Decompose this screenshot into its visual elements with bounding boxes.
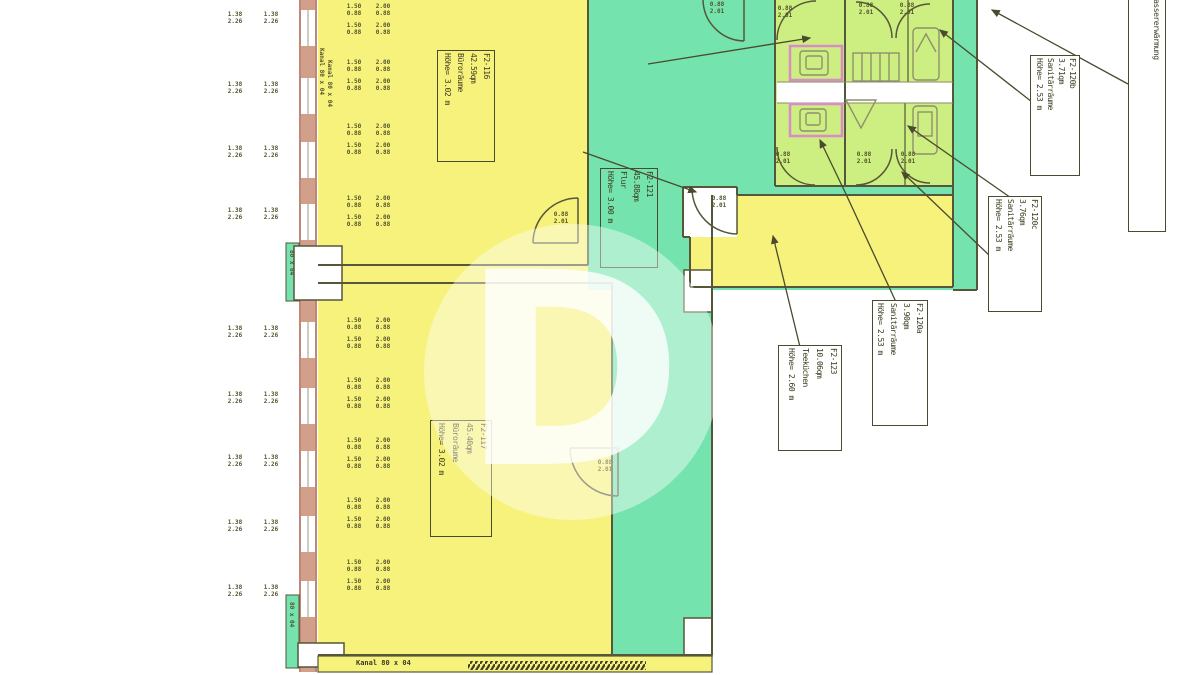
unit-tag: 1.500.88 [341, 517, 367, 530]
window-tag-bottom: 2.26 [258, 527, 284, 534]
unit-tag: 2.000.88 [370, 457, 396, 470]
window-tag: 1.382.26 [258, 455, 284, 468]
door-tag: 0.882.01 [770, 152, 796, 165]
room-label-F2-117: F2-117 45.40qm Büroräume Höhe= 3.02 m [430, 420, 492, 537]
window-tag: 1.382.26 [222, 392, 248, 405]
window-tag-bottom: 2.26 [222, 333, 248, 340]
label-line: 60 m [1134, 0, 1149, 229]
window-tag: 1.382.26 [222, 326, 248, 339]
door-tag-bottom: 2.01 [894, 10, 920, 17]
window-tag-bottom: 2.26 [258, 215, 284, 222]
window-tag-bottom: 2.26 [222, 527, 248, 534]
unit-tag: 1.500.88 [341, 143, 367, 156]
unit-tag-bottom: 0.88 [370, 67, 396, 74]
room-height: Höhe= 2.53 m [992, 199, 1004, 309]
unit-tag-bottom: 0.88 [370, 505, 396, 512]
unit-tag-bottom: 0.88 [370, 586, 396, 593]
window-tag: 1.382.26 [222, 585, 248, 598]
unit-tag: 1.500.88 [341, 337, 367, 350]
door-tag: 0.882.01 [851, 152, 877, 165]
room-label-F2-120b: F2-120b 3.71qm Sanitärräume Höhe= 2.53 m [1030, 55, 1080, 176]
unit-tag-bottom: 0.88 [341, 505, 367, 512]
facade-strip-note-2: 80 x 04 [288, 602, 295, 662]
door-tag-bottom: 2.01 [770, 159, 796, 166]
room-height: Höhe= 2.53 m [1034, 58, 1045, 173]
unit-tag: 2.000.88 [370, 378, 396, 391]
unit-tag: 1.500.88 [341, 498, 367, 511]
unit-tag-bottom: 0.88 [341, 86, 367, 93]
window-tag-bottom: 2.26 [258, 153, 284, 160]
unit-tag-bottom: 0.88 [370, 404, 396, 411]
unit-tag-bottom: 0.88 [341, 67, 367, 74]
wall-annotation-left-2: Kanal 80 x 04 [326, 60, 333, 150]
unit-tag-bottom: 0.88 [370, 344, 396, 351]
room-type: Flur [617, 171, 630, 265]
room-id: F2-120b [1067, 58, 1078, 173]
door-tag: 0.882.01 [894, 3, 920, 16]
room-label-F2-120a: F2-120a 3.90qm Sanitärräume Höhe= 2.53 m [872, 300, 928, 426]
window-tag: 1.382.26 [258, 12, 284, 25]
window-tag-bottom: 2.26 [222, 215, 248, 222]
unit-tag-bottom: 0.88 [341, 131, 367, 138]
window-tag-bottom: 2.26 [222, 153, 248, 160]
unit-tag-bottom: 0.88 [341, 325, 367, 332]
room-area: 3.90qm [900, 303, 913, 423]
unit-tag-bottom: 0.88 [370, 203, 396, 210]
unit-tag: 2.000.88 [370, 318, 396, 331]
room-label-F2-120c: F2-120c 3.76qm Sanitärräume Höhe= 2.53 m [988, 196, 1042, 312]
room-area: 45.40qm [462, 423, 476, 534]
unit-tag: 2.000.88 [370, 79, 396, 92]
wall-annotation-left-1: Kanal 80 x 04 [318, 48, 325, 148]
unit-tag-bottom: 0.88 [370, 464, 396, 471]
window-tag-bottom: 2.26 [222, 19, 248, 26]
door-tag-bottom: 2.01 [548, 219, 574, 226]
door-tag-bottom: 2.01 [895, 159, 921, 166]
unit-tag-bottom: 0.88 [370, 11, 396, 18]
room-label-F2-121: F2-121 45.88qm Flur Höhe= 3.00 m [600, 168, 658, 268]
door-tag: 0.882.01 [853, 3, 879, 16]
door-tag: 0.882.01 [772, 6, 798, 19]
unit-tag: 1.500.88 [341, 196, 367, 209]
room-id: F2-120a [913, 303, 926, 423]
window-tag-bottom: 2.26 [258, 19, 284, 26]
window-tag: 1.382.26 [222, 208, 248, 221]
unit-tag-bottom: 0.88 [341, 586, 367, 593]
unit-tag: 1.500.88 [341, 4, 367, 17]
unit-tag-bottom: 0.88 [370, 325, 396, 332]
door-tag-bottom: 2.01 [851, 159, 877, 166]
room-height: Höhe= 2.53 m [874, 303, 887, 423]
room-height: Höhe= 2.60 m [784, 348, 798, 448]
room-type: Sanitärräume [1004, 199, 1016, 309]
window-tag: 1.382.26 [258, 520, 284, 533]
room-type: Büroräume [454, 53, 467, 159]
window-tag: 1.382.26 [222, 455, 248, 468]
unit-tag: 1.500.88 [341, 60, 367, 73]
unit-tag: 1.500.88 [341, 378, 367, 391]
room-type: Sanitärräume [887, 303, 900, 423]
unit-tag-bottom: 0.88 [341, 203, 367, 210]
window-tag: 1.382.26 [222, 146, 248, 159]
unit-tag-bottom: 0.88 [370, 30, 396, 37]
unit-tag-bottom: 0.88 [341, 404, 367, 411]
window-tag-bottom: 2.26 [222, 462, 248, 469]
door-tag: 0.882.01 [895, 152, 921, 165]
door-tag: 0.882.01 [548, 212, 574, 225]
unit-tag: 2.000.88 [370, 337, 396, 350]
unit-tag-bottom: 0.88 [341, 567, 367, 574]
unit-tag-bottom: 0.88 [341, 524, 367, 531]
window-tag-bottom: 2.26 [222, 592, 248, 599]
window-tag: 1.382.26 [258, 392, 284, 405]
room-area: 3.71qm [1056, 58, 1067, 173]
unit-tag: 1.500.88 [341, 579, 367, 592]
door-tag: 0.882.01 [704, 2, 730, 15]
unit-tag: 2.000.88 [370, 560, 396, 573]
room-type: Büroräume [448, 423, 462, 534]
unit-tag: 2.000.88 [370, 517, 396, 530]
room-label-cutoff-brauchwasser: - und Brauchwassererwärmung 60 m [1128, 0, 1166, 232]
unit-tag-bottom: 0.88 [341, 30, 367, 37]
room-area: 3.76qm [1016, 199, 1028, 309]
window-tag-bottom: 2.26 [222, 89, 248, 96]
unit-tag: 2.000.88 [370, 215, 396, 228]
unit-tag: 2.000.88 [370, 4, 396, 17]
unit-tag: 1.500.88 [341, 23, 367, 36]
floorplan-canvas: F2-116 42.59qm Büroräume Höhe= 3.02 m F2… [0, 0, 1200, 675]
room-height: Höhe= 3.02 m [434, 423, 448, 534]
window-tag: 1.382.26 [258, 146, 284, 159]
unit-tag: 1.500.88 [341, 560, 367, 573]
unit-tag: 2.000.88 [370, 124, 396, 137]
room-label-F2-116: F2-116 42.59qm Büroräume Höhe= 3.02 m [437, 50, 495, 162]
room-area: 45.88qm [630, 171, 643, 265]
unit-tag: 1.500.88 [341, 124, 367, 137]
room-id: F2-116 [480, 53, 493, 159]
unit-tag-bottom: 0.88 [370, 524, 396, 531]
annotation-layer: F2-116 42.59qm Büroräume Höhe= 3.02 m F2… [0, 0, 1200, 675]
room-height: Höhe= 3.00 m [604, 171, 617, 265]
unit-tag-bottom: 0.88 [341, 150, 367, 157]
window-tag-bottom: 2.26 [222, 399, 248, 406]
unit-tag: 2.000.88 [370, 397, 396, 410]
unit-tag: 2.000.88 [370, 23, 396, 36]
door-tag-bottom: 2.01 [592, 467, 618, 474]
window-tag: 1.382.26 [222, 12, 248, 25]
room-id: F2-121 [643, 171, 656, 265]
unit-tag: 1.500.88 [341, 79, 367, 92]
door-tag: 0.882.01 [592, 460, 618, 473]
unit-tag-bottom: 0.88 [370, 567, 396, 574]
room-area: 10.06qm [812, 348, 826, 448]
room-height: Höhe= 3.02 m [441, 53, 454, 159]
unit-tag: 2.000.88 [370, 196, 396, 209]
unit-tag-bottom: 0.88 [341, 464, 367, 471]
window-tag-bottom: 2.26 [258, 462, 284, 469]
room-id: F2-120c [1028, 199, 1040, 309]
facade-strip-note-1: 80 x 04 [288, 250, 295, 300]
unit-tag-bottom: 0.88 [341, 11, 367, 18]
unit-tag-bottom: 0.88 [341, 445, 367, 452]
unit-tag-bottom: 0.88 [370, 150, 396, 157]
room-id: F2-123 [826, 348, 840, 448]
door-tag-bottom: 2.01 [772, 13, 798, 20]
window-tag: 1.382.26 [258, 82, 284, 95]
unit-tag-bottom: 0.88 [370, 222, 396, 229]
unit-tag-bottom: 0.88 [341, 344, 367, 351]
unit-tag-bottom: 0.88 [370, 385, 396, 392]
room-id: F2-117 [476, 423, 490, 534]
window-tag-bottom: 2.26 [258, 333, 284, 340]
unit-tag: 2.000.88 [370, 579, 396, 592]
window-tag-bottom: 2.26 [258, 89, 284, 96]
room-label-F2-123: F2-123 10.06qm Teeküchen Höhe= 2.60 m [778, 345, 842, 451]
window-tag-bottom: 2.26 [258, 399, 284, 406]
door-tag-bottom: 2.01 [706, 203, 732, 210]
unit-tag-bottom: 0.88 [370, 131, 396, 138]
unit-tag-bottom: 0.88 [370, 445, 396, 452]
unit-tag: 1.500.88 [341, 318, 367, 331]
room-area: 42.59qm [467, 53, 480, 159]
room-type: Teeküchen [798, 348, 812, 448]
unit-tag: 1.500.88 [341, 438, 367, 451]
unit-tag: 1.500.88 [341, 457, 367, 470]
door-tag-bottom: 2.01 [853, 10, 879, 17]
window-tag: 1.382.26 [258, 326, 284, 339]
window-tag: 1.382.26 [258, 208, 284, 221]
window-tag-bottom: 2.26 [258, 592, 284, 599]
unit-tag: 1.500.88 [341, 215, 367, 228]
window-tag: 1.382.26 [222, 82, 248, 95]
window-tag: 1.382.26 [222, 520, 248, 533]
unit-tag-bottom: 0.88 [341, 222, 367, 229]
unit-tag-bottom: 0.88 [370, 86, 396, 93]
window-tag: 1.382.26 [258, 585, 284, 598]
room-type: Sanitärräume [1045, 58, 1056, 173]
unit-tag: 2.000.88 [370, 498, 396, 511]
unit-tag: 2.000.88 [370, 143, 396, 156]
unit-tag: 1.500.88 [341, 397, 367, 410]
door-tag-bottom: 2.01 [704, 9, 730, 16]
label-line: - und Brauchwassererwärmung [1149, 0, 1164, 229]
unit-tag-bottom: 0.88 [341, 385, 367, 392]
unit-tag: 2.000.88 [370, 438, 396, 451]
wall-annotation-bottom: Kanal 80 x 04 [356, 659, 411, 667]
unit-tag: 2.000.88 [370, 60, 396, 73]
door-tag: 0.882.01 [706, 196, 732, 209]
